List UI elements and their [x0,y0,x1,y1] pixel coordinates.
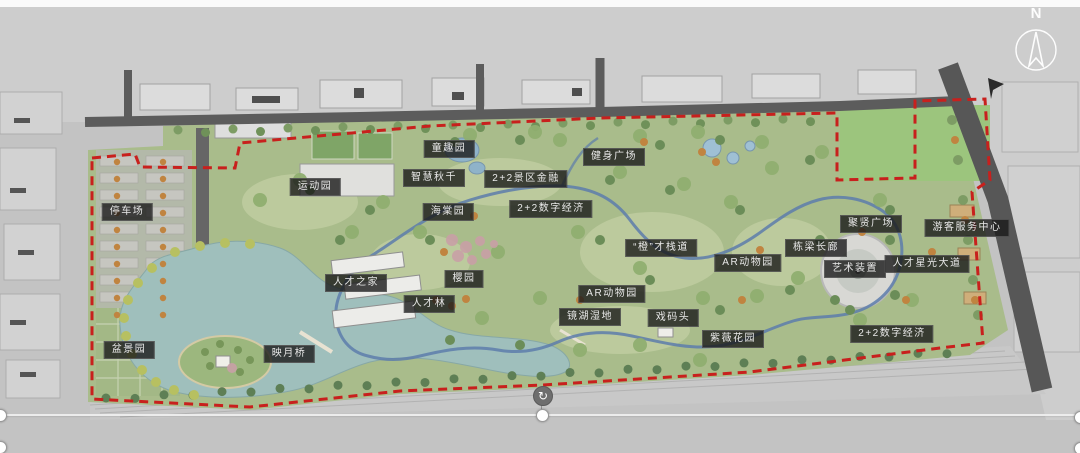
compass-needle-icon [1008,23,1064,75]
resize-handle-bottom-center[interactable] [536,409,549,422]
opera-dock-stage [658,328,673,337]
slide-canvas: 停车场运动园童趣园智慧秋千2+2景区金融健身广场海棠园2+2数字经济人才之家樱园… [0,0,1080,453]
north-letter: N [1008,6,1064,23]
slide-top-strip [0,0,1080,7]
site-plan-map [0,0,1080,453]
resize-handle-right-mid[interactable] [1074,411,1080,424]
north-compass: N [1008,6,1064,80]
rotate-handle-icon[interactable]: ↻ [533,386,553,406]
resize-handle-right-lower[interactable] [1074,442,1080,453]
art-installation-dot [855,268,861,274]
